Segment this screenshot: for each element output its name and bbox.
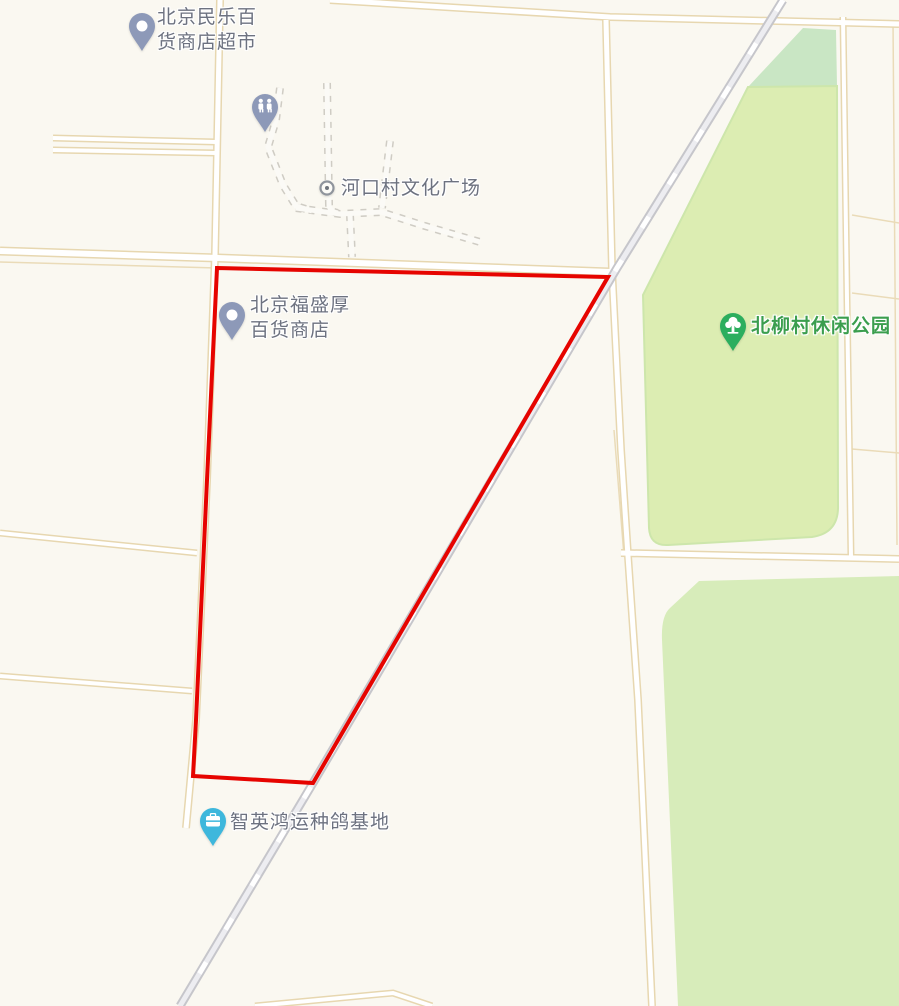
plaza-dot-icon[interactable] (318, 179, 336, 197)
poi-label[interactable]: 北京民乐百 货商店超市 (157, 5, 257, 55)
briefcase-pin-icon[interactable] (196, 805, 230, 849)
location-pin-icon[interactable] (215, 299, 249, 343)
poi-label-line2: 货商店超市 (157, 30, 257, 55)
poi-label[interactable]: 北柳村休闲公园 (751, 314, 891, 339)
location-pin-icon[interactable] (125, 10, 159, 54)
tree-pin-icon[interactable] (716, 310, 750, 354)
poi-label[interactable]: 北京福盛厚 百货商店 (250, 293, 350, 343)
poi-label-line1: 北京民乐百 (157, 5, 257, 30)
restroom-pin-icon[interactable] (248, 91, 282, 135)
map-canvas[interactable]: 北京民乐百 货商店超市 河口村文化广场 (0, 0, 899, 1006)
poi-label[interactable]: 河口村文化广场 (341, 176, 481, 201)
poi-label-line1: 北京福盛厚 (250, 293, 350, 318)
poi-label-line2: 百货商店 (250, 318, 350, 343)
map-base-layer (0, 0, 899, 1006)
poi-label[interactable]: 智英鸿运种鸽基地 (230, 810, 390, 835)
